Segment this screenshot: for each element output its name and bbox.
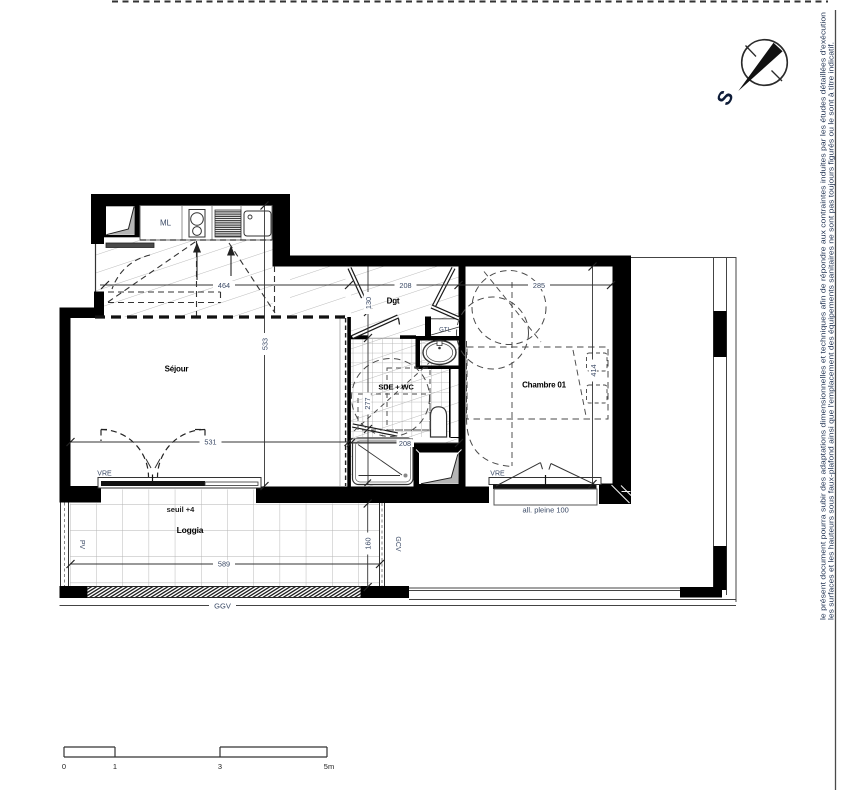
svg-text:Chambre 01: Chambre 01 <box>522 381 567 390</box>
svg-text:5m: 5m <box>324 762 334 771</box>
svg-text:les surfaces et les hauteurs s: les surfaces et les hauteurs sous faux-p… <box>829 42 836 620</box>
svg-text:208: 208 <box>399 281 411 290</box>
svg-text:GCV: GCV <box>394 536 401 552</box>
svg-text:seuil +4: seuil +4 <box>167 505 196 514</box>
svg-text:208: 208 <box>399 439 411 448</box>
svg-text:Dgt: Dgt <box>387 297 400 306</box>
svg-text:589: 589 <box>218 560 230 569</box>
svg-text:414: 414 <box>589 364 598 376</box>
svg-text:le présent document pourra sub: le présent document pourra subir des ada… <box>821 12 828 620</box>
svg-text:1: 1 <box>113 762 117 771</box>
svg-text:GGV: GGV <box>214 602 231 611</box>
svg-text:3: 3 <box>218 762 222 771</box>
svg-text:SDE + WC: SDE + WC <box>378 383 414 392</box>
svg-text:all. pleine 100: all. pleine 100 <box>523 505 569 514</box>
svg-text:0: 0 <box>62 762 66 771</box>
svg-text:GTL: GTL <box>439 328 451 334</box>
svg-text:531: 531 <box>204 438 216 447</box>
svg-text:Séjour: Séjour <box>165 365 189 374</box>
svg-text:277: 277 <box>363 397 372 409</box>
svg-text:VRE: VRE <box>97 471 112 478</box>
svg-text:130: 130 <box>364 297 373 309</box>
svg-text:VRE: VRE <box>490 471 505 478</box>
svg-text:285: 285 <box>533 281 545 290</box>
svg-text:533: 533 <box>261 338 270 350</box>
svg-text:Loggia: Loggia <box>177 525 204 535</box>
svg-text:464: 464 <box>218 281 230 290</box>
svg-text:160: 160 <box>364 537 373 549</box>
svg-text:PV: PV <box>78 540 85 550</box>
svg-text:ML: ML <box>160 219 172 228</box>
